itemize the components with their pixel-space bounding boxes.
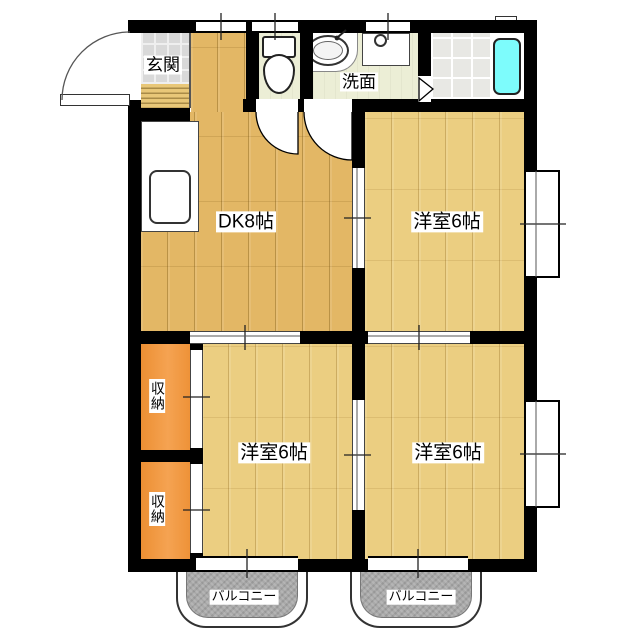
washbasin-inner — [313, 41, 343, 60]
closet-door-1 — [190, 350, 203, 448]
genkan-label: 玄関 — [144, 55, 182, 74]
bathtub-icon — [493, 38, 521, 95]
bedroom-ne-label: 洋室6帖 — [411, 211, 483, 232]
bedroom-s-label: 洋室6帖 — [238, 442, 310, 463]
washer-faucet-icon — [374, 34, 387, 47]
bathroom-floor — [431, 33, 490, 99]
sliding-door-dk-s — [190, 331, 300, 344]
sliding-door-ne-se — [368, 331, 470, 344]
closet-1-label: 収納 — [149, 379, 165, 413]
closet-2-label: 収納 — [149, 492, 165, 526]
washroom-label: 洗面 — [340, 72, 378, 91]
wall-toilet-washroom — [300, 33, 313, 99]
window-balcony-2 — [368, 556, 468, 572]
sliding-door-s-se — [352, 400, 365, 510]
hall-floor — [191, 33, 248, 112]
wall-top — [128, 20, 537, 33]
wall-genkan-bottom — [128, 108, 190, 121]
wall-bottom — [128, 559, 537, 572]
sliding-door-dk-ne — [352, 168, 365, 268]
balcony-1-label: バルコニー — [210, 590, 279, 605]
dk-label: DK8帖 — [216, 211, 276, 232]
bedroom-se-label: 洋室6帖 — [412, 442, 484, 463]
balcony-2-label: バルコニー — [387, 590, 456, 605]
entrance-door-leaf — [60, 94, 130, 106]
genkan-step — [141, 84, 190, 108]
wall-toilet-left — [246, 33, 259, 99]
window-right-se — [524, 400, 560, 508]
genkan-hall-divider — [189, 33, 191, 108]
window-top-washroom — [366, 20, 410, 33]
wall-washroom-bath — [418, 33, 431, 76]
floor-plan: 玄関 洗面 DK8帖 洋室6帖 洋室6帖 洋室6帖 収納 収納 バルコニー バル… — [0, 0, 640, 640]
entrance-door-arc — [62, 32, 130, 100]
door-gap-toilet — [256, 99, 298, 112]
kitchen-sink-icon — [149, 170, 191, 224]
door-gap-bath — [418, 76, 431, 102]
window-balcony-1 — [196, 556, 298, 572]
door-gap-washroom — [304, 99, 352, 112]
window-right-ne — [524, 170, 560, 278]
window-top-toilet — [252, 20, 298, 33]
closet-door-2 — [190, 464, 203, 553]
wall-closet-mid — [128, 450, 203, 462]
window-top-hall — [196, 20, 246, 33]
